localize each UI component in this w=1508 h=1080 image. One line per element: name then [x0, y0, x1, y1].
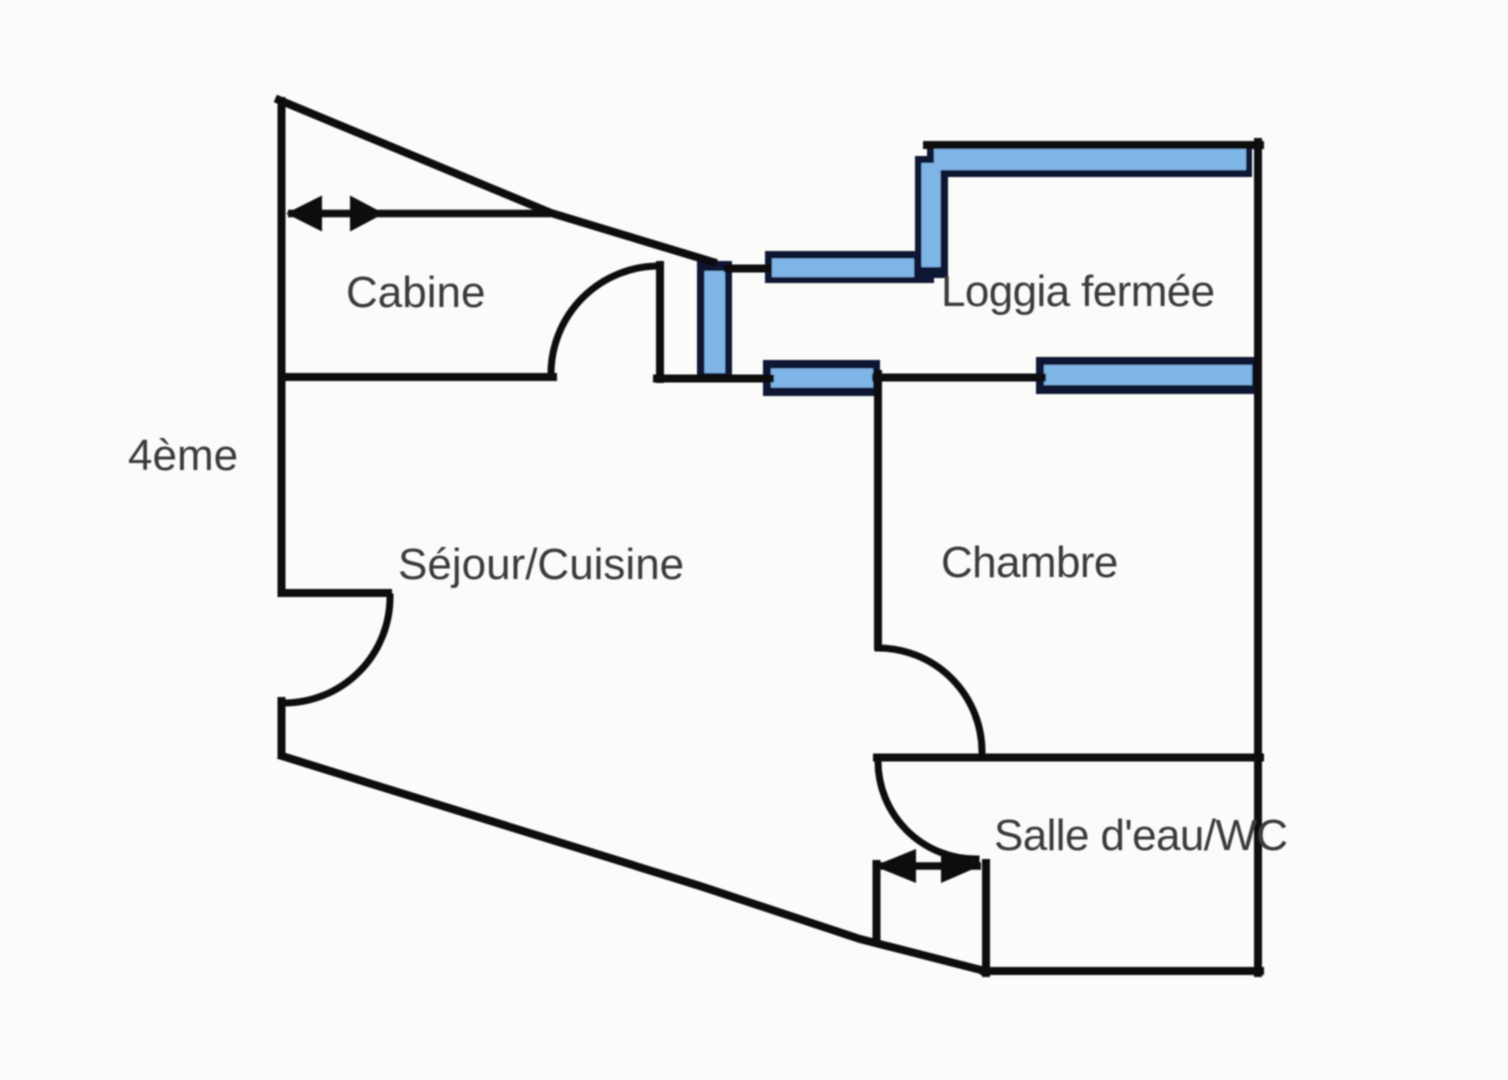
- svg-text:Salle d'eau/WC: Salle d'eau/WC: [994, 811, 1287, 860]
- svg-text:Cabine: Cabine: [346, 268, 485, 317]
- svg-text:Loggia fermée: Loggia fermée: [941, 267, 1215, 316]
- svg-text:4ème: 4ème: [128, 431, 238, 480]
- svg-text:Chambre: Chambre: [941, 538, 1118, 587]
- svg-text:Séjour/Cuisine: Séjour/Cuisine: [398, 540, 684, 589]
